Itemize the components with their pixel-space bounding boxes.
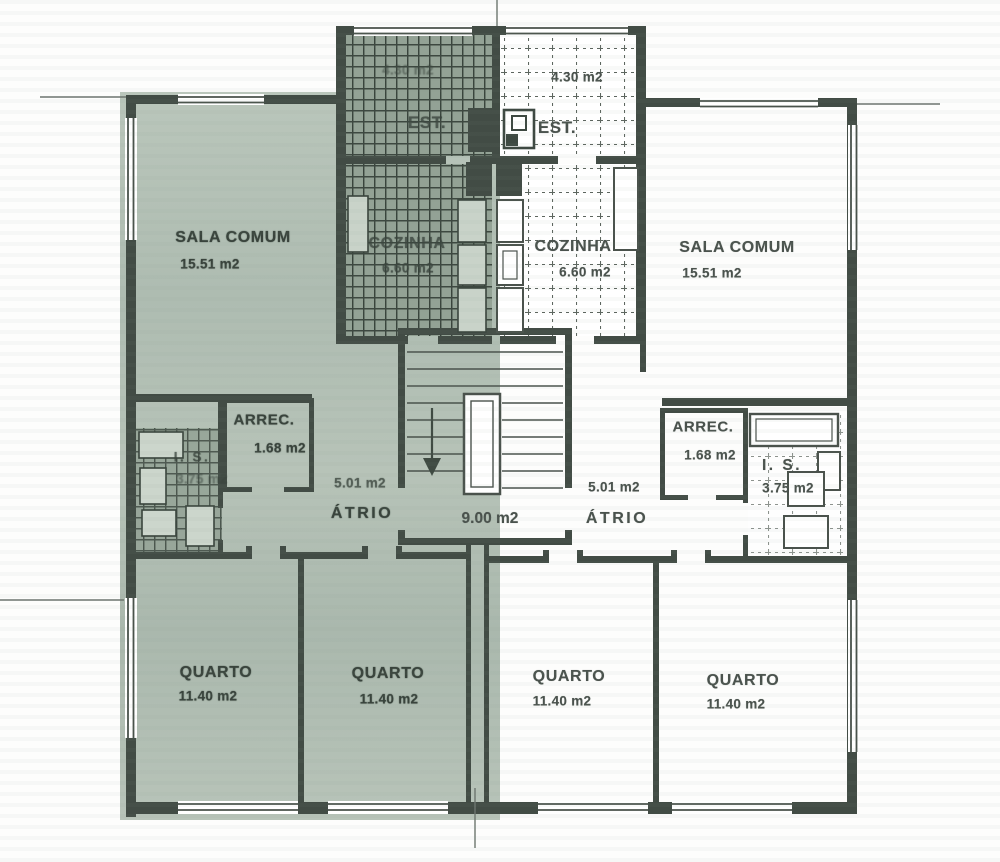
room-label-sala-comum-left-area: 15.51 m2 <box>180 257 239 272</box>
floorplan-drawing <box>0 0 1000 862</box>
room-label-quarto-right-1-name: QUARTO <box>533 668 606 686</box>
room-label-quarto-right-1-area: 11.40 m2 <box>533 694 592 709</box>
room-label-quarto-left-2-name: QUARTO <box>352 665 425 683</box>
room-label-quarto-left-1-name: QUARTO <box>180 664 253 682</box>
room-label-est-left-name: EST. <box>408 113 446 133</box>
room-label-atrio-right-name: ÁTRIO <box>586 510 648 528</box>
room-label-cozinha-left-area: 6.60 m2 <box>382 261 434 276</box>
room-label-quarto-right-2-area: 11.40 m2 <box>707 697 766 712</box>
room-label-est-right-area: 4.30 m2 <box>551 70 603 85</box>
duct-symbol-icon <box>504 110 534 148</box>
floorplan-canvas: EST. 4.30 m2 EST. 4.30 m2 SALA COMUM 15.… <box>0 0 1000 862</box>
room-label-arrec-right-name: ARREC. <box>672 419 733 436</box>
room-label-arrec-right-area: 1.68 m2 <box>684 448 736 463</box>
room-label-atrio-right-area: 5.01 m2 <box>588 480 640 495</box>
room-label-est-right-name: EST. <box>538 118 576 138</box>
room-label-cozinha-right-area: 6.60 m2 <box>559 265 611 280</box>
room-label-arrec-left-name: ARREC. <box>233 412 294 429</box>
room-label-cozinha-left-name: COZINHA <box>368 235 445 253</box>
room-label-is-left-name: I. S. <box>174 450 211 465</box>
room-label-sala-comum-left-name: SALA COMUM <box>175 229 291 247</box>
room-label-est-left-area: 4.30 m2 <box>382 63 434 78</box>
bidet-icon <box>784 516 828 548</box>
room-label-quarto-left-2-area: 11.40 m2 <box>360 692 419 707</box>
stair-down-arrow-icon <box>423 408 441 476</box>
room-label-sala-comum-right-name: SALA COMUM <box>679 239 795 257</box>
room-label-is-right-area: 3.75 m2 <box>762 481 814 496</box>
room-label-atrio-left-name: ÁTRIO <box>331 505 393 523</box>
room-label-is-left-area: 3.75 m2 <box>176 472 228 487</box>
room-label-atrio-left-area: 5.01 m2 <box>334 476 386 491</box>
room-label-arrec-left-area: 1.68 m2 <box>254 441 306 456</box>
room-label-stairwell-area: 9.00 m2 <box>462 510 519 528</box>
room-label-quarto-right-2-name: QUARTO <box>707 672 780 690</box>
room-label-cozinha-right-name: COZINHA <box>534 238 611 256</box>
room-label-quarto-left-1-area: 11.40 m2 <box>179 689 238 704</box>
room-label-is-right-name: I. S. <box>762 457 802 475</box>
room-label-sala-comum-right-area: 15.51 m2 <box>682 266 741 281</box>
